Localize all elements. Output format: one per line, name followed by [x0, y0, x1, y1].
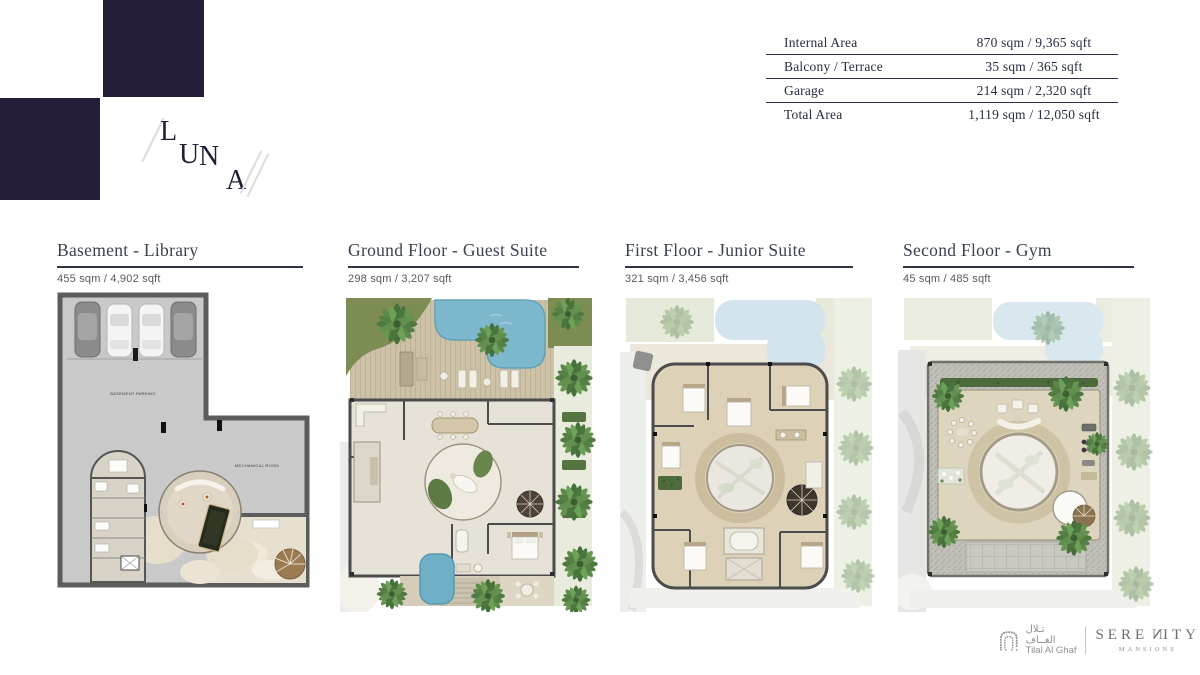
floor-plan-second: [898, 292, 1156, 612]
developer-name-english: Tilal Al Ghaf: [1026, 646, 1077, 656]
floor-plan-basement: BASEMENT PARKING MECHANICAL ROOM: [57, 292, 310, 602]
row-label: Garage: [766, 83, 950, 99]
vanity: [776, 430, 806, 440]
staff-bed: [109, 460, 127, 472]
brochure-page: L U N A Internal Area 870 sqm / 9,365 sq…: [0, 0, 1200, 675]
car-white-2: [139, 304, 164, 357]
parking-label: BASEMENT PARKING: [110, 391, 156, 396]
guest-bedroom: [507, 532, 543, 559]
floor-area: 455 sqm / 4,902 sqft: [57, 273, 303, 285]
column: [217, 420, 222, 431]
stone-planter: [938, 468, 964, 484]
sun-lounger: [511, 370, 519, 388]
floor-plan-ground: [340, 292, 598, 612]
sun-lounger: [500, 370, 508, 388]
floor-area: 298 sqm / 3,207 sqft: [348, 273, 579, 285]
floor-header-ground: Ground Floor - Guest Suite 298 sqm / 3,2…: [348, 240, 579, 285]
floor-header-first: First Floor - Junior Suite 321 sqm / 3,4…: [625, 240, 853, 285]
car-suv-left: [75, 302, 100, 357]
row-value: 214 sqm / 2,320 sqft: [950, 83, 1118, 99]
kitchen: [354, 442, 380, 502]
logo-square-top: [103, 0, 204, 97]
roof-terrace: [928, 362, 1109, 576]
floor-header-second: Second Floor - Gym 45 sqm / 485 sqft: [903, 240, 1134, 285]
lift: [121, 556, 139, 570]
row-value: 1,119 sqm / 12,050 sqft: [950, 107, 1118, 123]
table-row: Total Area 1,119 sqm / 12,050 sqft: [766, 103, 1118, 126]
serenity-mansions-logo: SERENITY MANSIONS: [1095, 627, 1200, 653]
floor-title: Second Floor - Gym: [903, 240, 1134, 268]
logo-square-bottom: [0, 98, 100, 200]
room-label-box: [253, 520, 279, 528]
tilal-al-ghaf-logo: تـلال الغــاف Tilal Al Ghaf: [997, 624, 1076, 656]
row-label: Balcony / Terrace: [766, 59, 950, 75]
bathroom-suite: [724, 528, 764, 580]
developer-name: تـلال الغــاف Tilal Al Ghaf: [1026, 624, 1077, 656]
bed: [662, 442, 680, 468]
logo-letter-l: L: [160, 118, 177, 146]
footer-divider: [1085, 627, 1086, 654]
first-floor-body: [653, 362, 827, 588]
plunge-pool: [420, 554, 454, 604]
brand-tagline: MANSIONS: [1095, 646, 1200, 653]
sun-lounger: [469, 370, 477, 388]
row-label: Internal Area: [766, 35, 950, 51]
bed: [782, 386, 810, 406]
bed: [727, 398, 751, 426]
car-white-1: [107, 304, 132, 357]
door-marker: [144, 504, 147, 512]
column: [161, 422, 166, 433]
spiral-stair: [787, 485, 817, 515]
outdoor-seating-ring: [947, 417, 976, 447]
logo-letter-u: U: [179, 141, 199, 169]
spiral-stair: [517, 491, 543, 517]
logo-letter-n: N: [199, 143, 219, 171]
spiral-stair: [275, 549, 305, 579]
car-suv-right: [171, 302, 196, 357]
footer-brand-lockup: تـلال الغــاف Tilal Al Ghaf SERENITY MAN…: [997, 624, 1200, 656]
floor-title: Basement - Library: [57, 240, 303, 268]
floor-area: 45 sqm / 485 sqft: [903, 273, 1134, 285]
developer-name-arabic: تـلال الغــاف: [1026, 624, 1077, 646]
floor-plan-first: [620, 292, 878, 612]
row-value: 35 sqm / 365 sqft: [950, 59, 1118, 75]
central-courtyard: [423, 444, 501, 520]
row-label: Total Area: [766, 107, 950, 123]
floor-title: First Floor - Junior Suite: [625, 240, 853, 268]
brand-wordmark: SERENITY: [1095, 627, 1200, 644]
table-row: Balcony / Terrace 35 sqm / 365 sqft: [766, 55, 1118, 79]
service-rooms: [91, 451, 147, 582]
skylight-opening: [973, 426, 1065, 518]
table-row: Garage 214 sqm / 2,320 sqft: [766, 79, 1118, 103]
sun-lounger: [458, 370, 466, 388]
floor-title: Ground Floor - Guest Suite: [348, 240, 579, 268]
floor-area: 321 sqm / 3,456 sqft: [625, 273, 853, 285]
bed: [683, 384, 705, 412]
bed: [684, 542, 706, 570]
column: [133, 348, 138, 361]
floor-header-basement: Basement - Library 455 sqm / 4,902 sqft: [57, 240, 303, 285]
area-summary-table: Internal Area 870 sqm / 9,365 sqft Balco…: [766, 31, 1118, 126]
house-interior: [350, 398, 554, 576]
row-value: 870 sqm / 9,365 sqft: [950, 35, 1118, 51]
mechanical-label: MECHANICAL ROOM: [235, 463, 279, 468]
arch-gate-icon: [997, 628, 1021, 652]
logo-letter-a: A: [226, 167, 246, 195]
bed: [801, 542, 823, 568]
central-void: [700, 438, 780, 518]
window-seat: [806, 462, 822, 488]
table-row: Internal Area 870 sqm / 9,365 sqft: [766, 31, 1118, 55]
reversed-n: N: [1148, 627, 1163, 644]
